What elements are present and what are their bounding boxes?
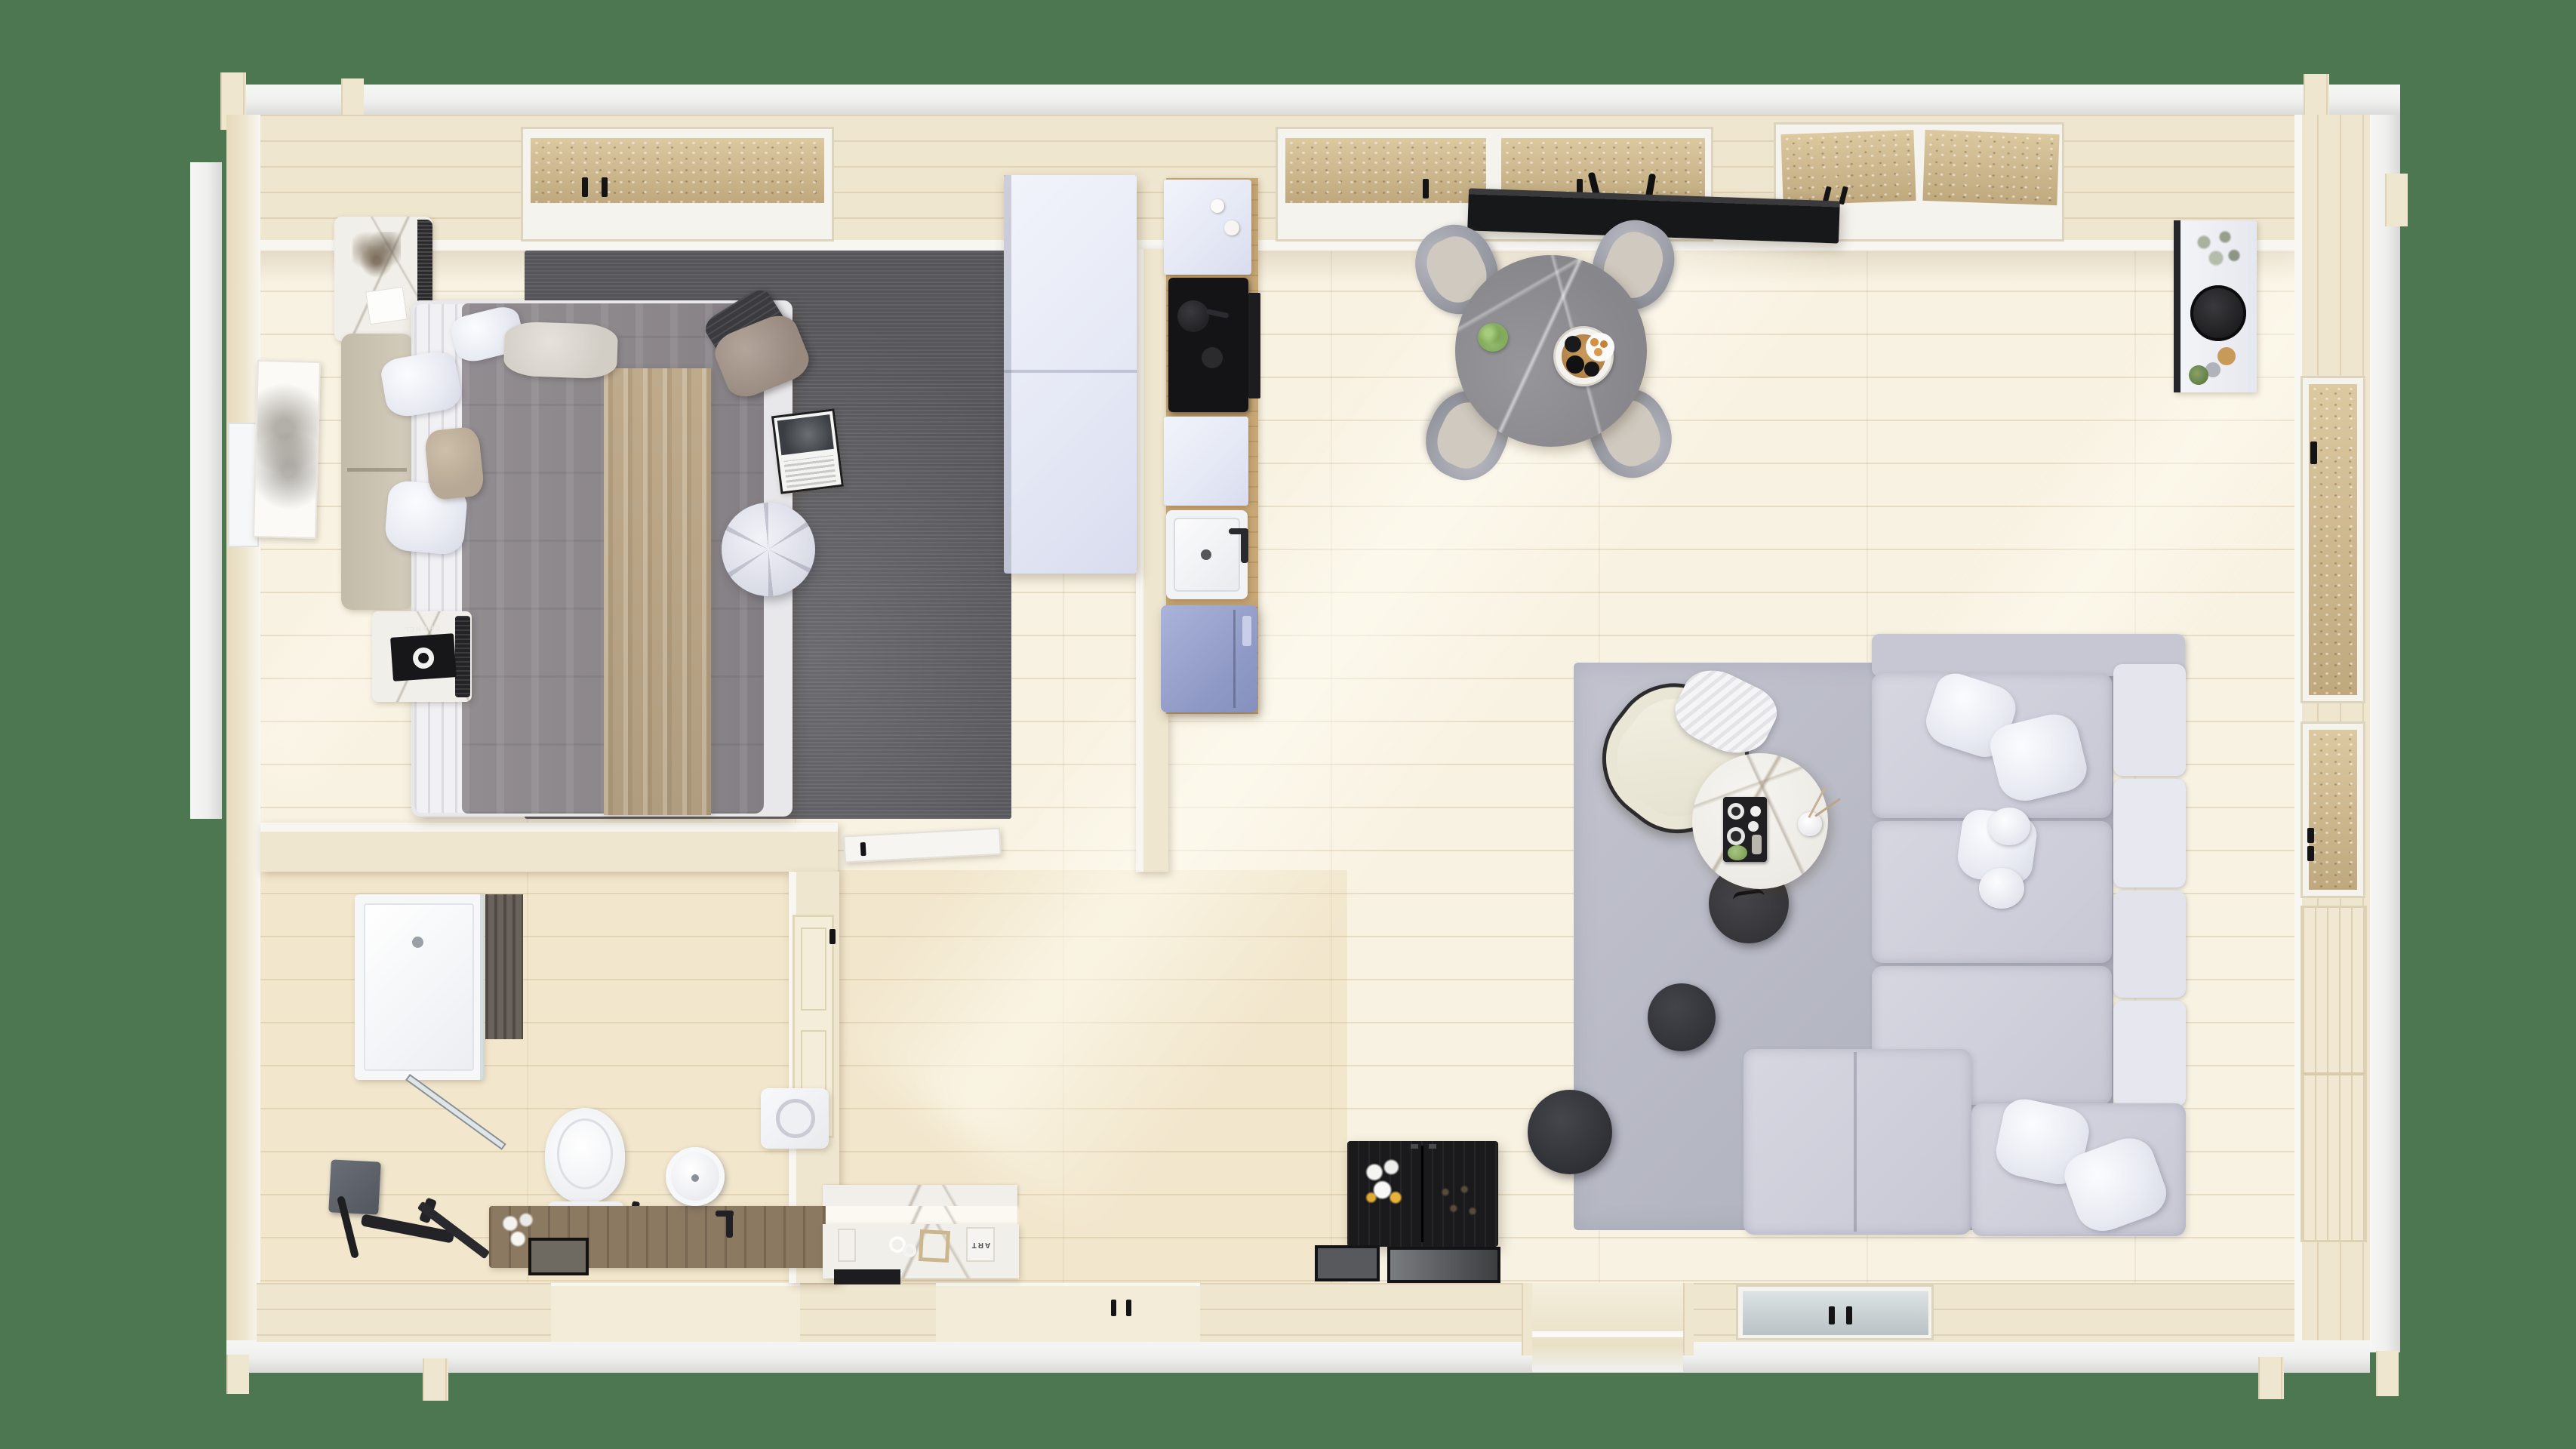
console-mid-slab — [826, 1206, 1017, 1224]
small-dish — [1750, 806, 1761, 817]
round-pouf-quilted — [722, 503, 815, 596]
sink-faucet-arm — [716, 1211, 734, 1217]
oven-front — [1248, 293, 1260, 398]
partition-bedroom-bathroom — [260, 823, 838, 872]
wardrobe-edge-shade — [1004, 175, 1011, 574]
foot-chest: CHANEL — [372, 611, 472, 702]
washer-door — [776, 1099, 815, 1138]
window-handle — [1126, 1300, 1131, 1316]
sofa-chaise — [1743, 1049, 1971, 1235]
shower-tray — [355, 894, 483, 1080]
window-handle — [602, 177, 608, 197]
round-seat-plate — [1979, 868, 2024, 909]
bed-pillow-beige — [423, 426, 485, 500]
sofa-back-cushion — [2113, 1001, 2186, 1106]
pastry — [1590, 338, 1599, 346]
window-handle — [582, 177, 588, 197]
sink-drain — [691, 1174, 699, 1182]
log-joint-bottom-left — [423, 1358, 448, 1401]
window-glass-tilted — [1780, 130, 1916, 205]
tray-plant — [1728, 845, 1747, 860]
window-top-bedroom — [521, 127, 834, 241]
console-back-slab — [823, 1185, 1017, 1206]
roof-beam-bottom — [226, 1340, 2370, 1373]
partition-bedroom-kitchen — [1136, 249, 1168, 872]
cooking-pot — [1177, 300, 1209, 332]
bed-throw-blanket — [604, 368, 711, 815]
espresso-cup — [1565, 336, 1581, 352]
cup — [1728, 803, 1744, 820]
pot-handle — [1206, 309, 1230, 318]
kitchen-sink — [1166, 510, 1248, 599]
door-handle — [860, 842, 866, 856]
flower-bouquet — [1359, 1153, 1411, 1217]
espresso-cup — [1566, 355, 1584, 374]
card-decor — [365, 287, 408, 325]
kitchen-cabinet — [1164, 417, 1248, 506]
dark-pouf-large — [1528, 1090, 1612, 1174]
log-joint-bottom-right — [2258, 1357, 2284, 1399]
shower-drain — [412, 937, 423, 948]
pastry — [1594, 348, 1602, 356]
washing-machine — [761, 1088, 829, 1149]
bookend — [838, 1229, 856, 1262]
door-handle — [2307, 846, 2314, 861]
magazine-cover-photo — [777, 414, 834, 455]
door-handle — [829, 929, 836, 944]
headboard-seam — [347, 468, 407, 472]
roof-beam-left — [190, 162, 222, 819]
roof-beam-top — [226, 85, 2400, 116]
coffee-table-tray — [1723, 797, 1767, 862]
sofa-back-cushion — [2113, 779, 2186, 888]
small-dish — [1748, 821, 1759, 832]
espresso-cup — [1584, 361, 1599, 377]
wardrobe — [1004, 175, 1137, 574]
window-handle — [1111, 1300, 1116, 1316]
chaise-seam — [1854, 1052, 1857, 1232]
door-handle — [2307, 828, 2314, 843]
log-joint-bottom-right-2 — [2376, 1351, 2399, 1396]
leaning-art-tray — [1387, 1247, 1500, 1283]
window-glass-tilted — [1922, 130, 2059, 205]
rain-shower-head — [328, 1159, 381, 1214]
sink-faucet-arm — [1229, 528, 1248, 534]
door-right-glazed-upper — [2301, 376, 2365, 703]
window-bottom-bathroom — [551, 1283, 800, 1342]
chest-dark-edge — [455, 616, 470, 697]
cooking-pan — [1202, 347, 1223, 368]
decor-frame — [919, 1229, 950, 1263]
console-floor-tray — [834, 1269, 900, 1284]
sofa-back-cushion — [2113, 891, 2186, 998]
shower-glass-side — [480, 894, 485, 1080]
sideboard-seam — [1421, 1146, 1423, 1242]
cup — [1727, 827, 1745, 845]
door-handle — [1846, 1306, 1852, 1324]
log-joint-right — [2385, 174, 2408, 226]
toilet-seat — [557, 1118, 613, 1189]
table-plant — [1478, 323, 1508, 352]
art-books-stack: ART — [966, 1227, 995, 1262]
door-glass-mottled — [2309, 730, 2357, 890]
pastry-plate — [1586, 333, 1614, 361]
sink-drain — [1201, 549, 1211, 560]
door-handle — [1829, 1306, 1835, 1324]
coffee-cup — [1224, 220, 1239, 235]
dining-table-round — [1455, 255, 1647, 447]
leaning-art-tray — [1315, 1245, 1380, 1281]
decor-ring — [903, 1244, 916, 1257]
art-frame-leaning — [253, 360, 321, 539]
toilet — [545, 1108, 625, 1203]
console-sideboard-right — [2174, 220, 2257, 392]
fashion-book-title: CHANEL — [389, 623, 453, 635]
cooktop — [1168, 278, 1248, 412]
door-panel — [801, 928, 826, 1011]
fridge-handle — [1242, 616, 1251, 646]
serving-tray — [1553, 326, 1614, 386]
side-table-handle — [1732, 888, 1765, 905]
dried-plant — [352, 232, 401, 285]
bottle — [1752, 835, 1762, 854]
black-bowl — [2190, 285, 2246, 341]
window-glass — [1285, 138, 1486, 203]
console-dark-edge — [2174, 220, 2181, 392]
roof-beam-right — [2370, 115, 2400, 1352]
log-joint-bottom-left-2 — [226, 1355, 249, 1394]
sideboard-knob — [1429, 1144, 1436, 1149]
window-glass — [531, 138, 824, 203]
round-sink-bowl — [666, 1147, 725, 1206]
eucalyptus-decor — [2186, 226, 2246, 279]
door-opening-bottom — [1532, 1283, 1683, 1372]
door-glass-mottled — [2309, 384, 2357, 695]
window-bottom-hallway — [936, 1283, 1200, 1342]
sofa-back-cushion — [2113, 664, 2186, 776]
magazine — [771, 408, 844, 494]
door-jamb — [1522, 1283, 1532, 1355]
patio-door-glass — [1743, 1291, 1928, 1335]
bed-pillow-wide — [503, 321, 618, 379]
shower-slat-panel — [485, 894, 523, 1039]
fashion-book: CHANEL — [390, 633, 457, 681]
door-threshold — [1532, 1331, 1683, 1337]
door-right-glazed-lower — [2301, 721, 2365, 898]
dark-pouf — [1648, 983, 1716, 1051]
pastry — [1600, 340, 1608, 348]
sideboard-decor-items — [1432, 1176, 1486, 1230]
cabin-floorplan-scene: CHANEL — [0, 0, 2576, 1449]
shower-tray-inner — [364, 903, 474, 1071]
fridge — [1161, 605, 1257, 712]
fridge-seam — [1233, 610, 1236, 708]
patio-door-glazed — [1736, 1284, 1934, 1340]
decor-plate — [2217, 347, 2236, 365]
door-handle — [2310, 441, 2317, 464]
wall-left — [226, 115, 260, 1340]
door-jamb — [1683, 1283, 1694, 1355]
coffee-cup — [1211, 199, 1224, 213]
wardrobe-seam — [1004, 370, 1137, 373]
potted-plant — [2189, 365, 2208, 385]
magazine-text-columns — [783, 455, 836, 488]
wall-top-inner-edge — [257, 240, 2294, 251]
sideboard-knob — [1411, 1144, 1418, 1149]
book-spine-text: ART — [968, 1241, 993, 1249]
decor-ring — [412, 647, 435, 669]
bench-tray-mirror — [528, 1238, 589, 1275]
window-handle — [1423, 179, 1429, 198]
door-right-wood — [2301, 906, 2367, 1242]
door-rail — [2303, 1072, 2365, 1075]
round-seat-plate — [1988, 808, 2030, 845]
